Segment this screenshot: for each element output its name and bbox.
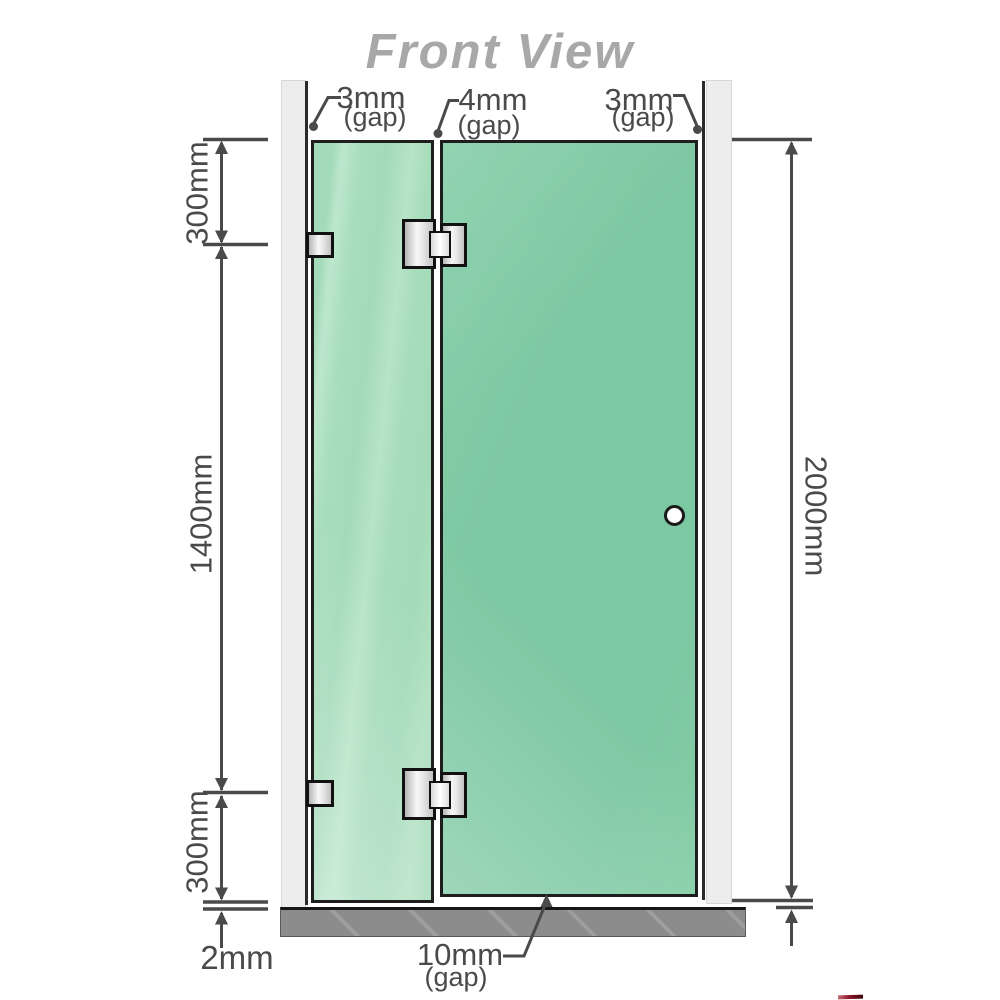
- wall-bracket-bottom: [306, 780, 334, 807]
- right-wall-face-line: [702, 81, 705, 900]
- gap-label-top-middle-suffix: (gap): [457, 112, 520, 139]
- floor-base: [280, 907, 746, 937]
- page-title: Front View: [0, 24, 1000, 80]
- dim-label-300mm-bottom: 300mm: [182, 790, 213, 893]
- dim-label-1400mm: 1400mm: [186, 454, 217, 575]
- gap-label-bottom-suffix: (gap): [424, 964, 487, 991]
- glass-door-panel: [440, 140, 698, 897]
- dim-label-300mm-top: 300mm: [182, 141, 213, 244]
- glass-hinge-top-connector: [429, 231, 451, 258]
- glass-hinge-bottom-connector: [429, 781, 451, 809]
- left-wall-channel: [281, 80, 306, 910]
- gap-label-top-right-suffix: (gap): [611, 104, 674, 131]
- dim-label-2000mm: 2000mm: [801, 456, 832, 577]
- gap-label-top-left-suffix: (gap): [343, 104, 406, 131]
- door-knob: [664, 505, 685, 526]
- dim-label-2mm: 2mm: [200, 941, 273, 974]
- right-wall-channel: [706, 80, 732, 904]
- logo-fragment: [838, 995, 863, 1000]
- wall-bracket-top: [306, 232, 334, 258]
- front-view-diagram: Front View: [0, 0, 1000, 1000]
